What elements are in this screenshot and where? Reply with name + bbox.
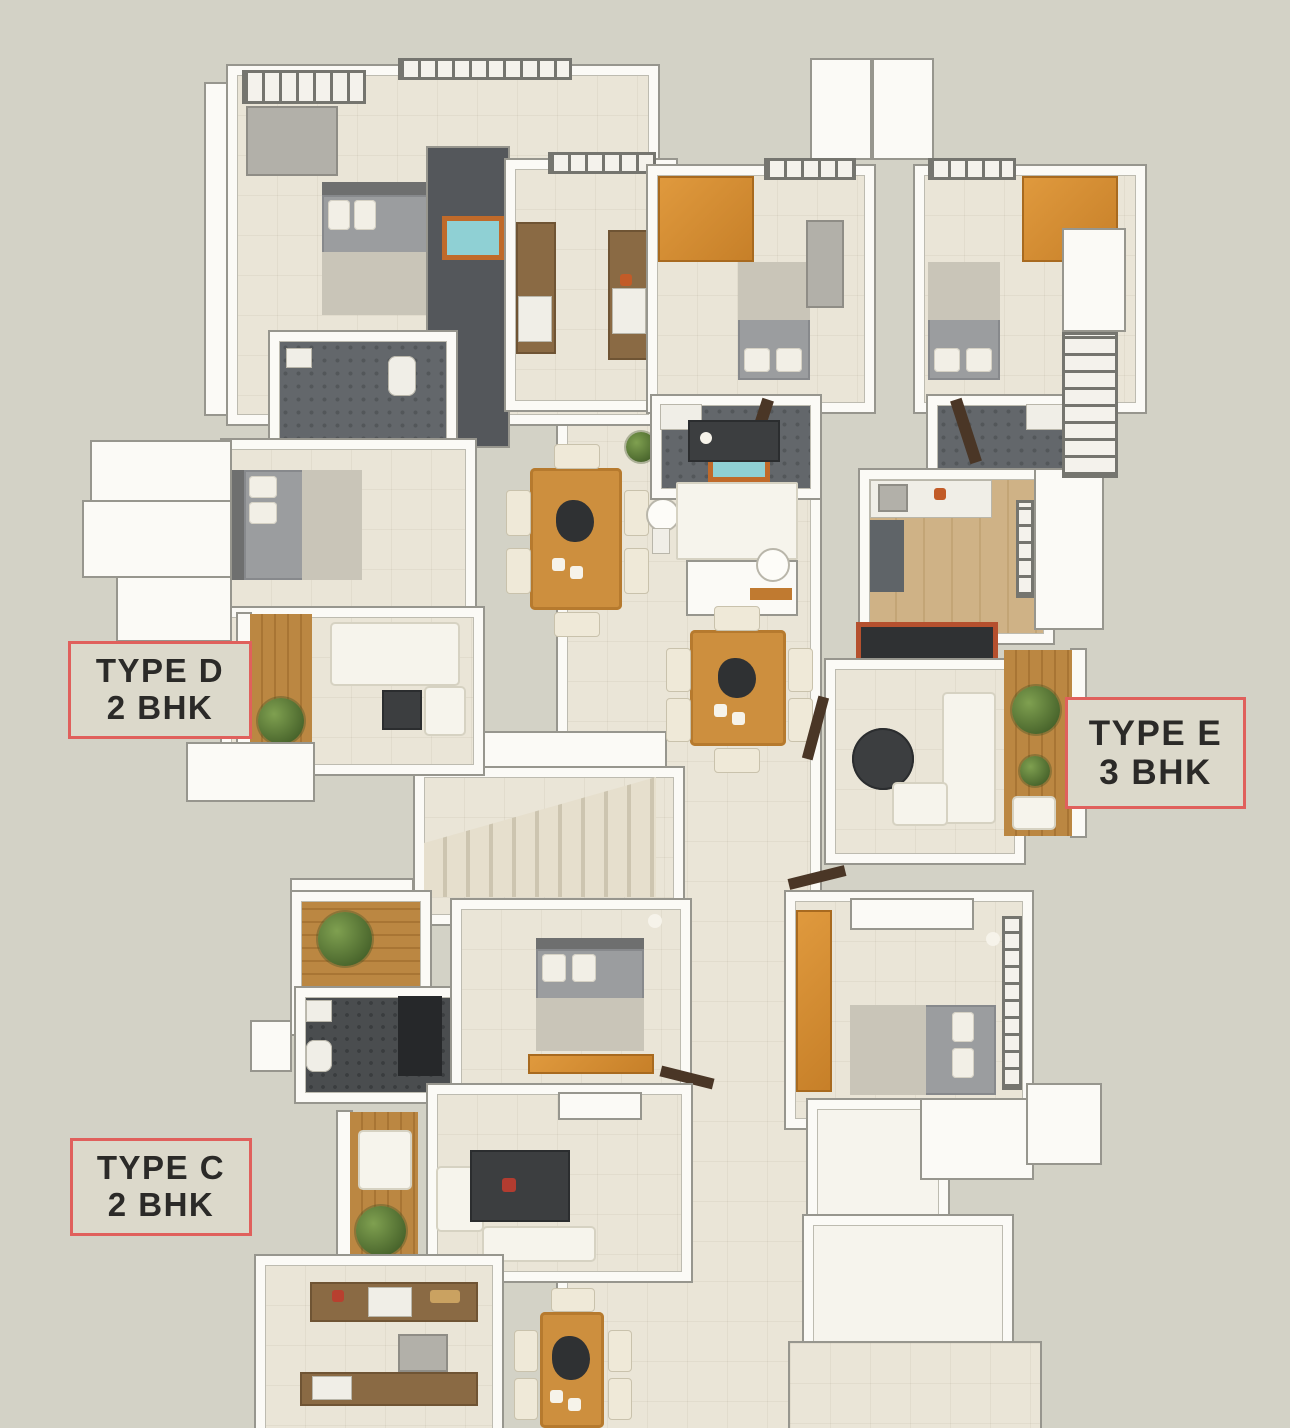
type-e-sofa-chaise xyxy=(892,782,948,826)
type-e-kitchen-counter-dark xyxy=(870,520,904,592)
label-type-c: TYPE C 2 BHK xyxy=(70,1138,252,1236)
type-c-bedroom-lamp xyxy=(648,914,662,928)
type-e-kitchen-window xyxy=(1016,500,1034,598)
type-d-bed2-headboard xyxy=(232,470,244,580)
type-d-mirror xyxy=(442,216,504,260)
type-e-balcony-chair xyxy=(1012,796,1056,830)
type-d-bed-headboard xyxy=(322,182,428,195)
type-e-chair xyxy=(666,648,691,692)
type-c-bed-headboard xyxy=(536,938,644,949)
type-e-bed2-blanket xyxy=(928,262,1000,320)
type-c-lounge-chair xyxy=(358,1130,412,1190)
type-c-balcony2-plant xyxy=(356,1206,406,1256)
type-d-left-balcony-wall xyxy=(118,578,230,640)
type-c-stove xyxy=(368,1287,412,1317)
type-d-tv-console xyxy=(382,690,422,730)
type-e-bed2-pillow xyxy=(966,348,992,372)
type-c-coffee-table-accent xyxy=(502,1178,516,1192)
type-e-bedroom3-lamp xyxy=(986,932,1000,946)
type-c-coffee-table xyxy=(470,1150,570,1222)
type-e-kitchen-sink xyxy=(878,484,908,512)
type-d-chair xyxy=(624,548,649,594)
type-c-table-centerpiece xyxy=(552,1336,590,1380)
type-c-chair xyxy=(608,1330,632,1372)
type-e-bedroom3-wardrobe xyxy=(796,910,832,1092)
type-c-kitchen-utensil xyxy=(332,1290,344,1302)
type-d-left-balcony-wall xyxy=(92,442,230,500)
type-c-chair xyxy=(514,1330,538,1372)
type-d-plate xyxy=(570,566,583,579)
type-e-bottom-wall-stub xyxy=(1028,1085,1100,1163)
type-d-sofa xyxy=(330,622,460,686)
type-e-bedroom3-window xyxy=(1002,916,1022,1090)
type-e-coffee-table xyxy=(852,728,914,790)
type-d-fridge xyxy=(518,296,552,342)
label-type-c-line2: 2 BHK xyxy=(108,1187,215,1224)
type-c-bed-pillow xyxy=(542,954,566,982)
type-d-bed2-pillow xyxy=(249,502,277,524)
type-d-balcony-plant xyxy=(258,698,304,744)
type-d-bed2-blanket xyxy=(302,470,362,580)
type-d-bed2-pillow xyxy=(249,476,277,498)
type-e-bedroom3-shelf xyxy=(852,900,972,928)
type-e-right-window-column xyxy=(1062,332,1118,478)
type-c-cutting-board xyxy=(430,1290,460,1303)
type-e-washbasin-mat xyxy=(750,588,792,600)
staircase-steps xyxy=(424,777,656,897)
type-c-plate xyxy=(550,1390,563,1403)
type-e-chair xyxy=(788,648,813,692)
type-e-bedroom1-wardrobe xyxy=(658,176,754,262)
type-e-duct-shaft xyxy=(874,60,932,158)
type-d-washbasin xyxy=(646,498,680,532)
type-e-sofa-long xyxy=(942,692,996,824)
type-e-chair xyxy=(714,748,760,773)
type-e-kitchen-hob xyxy=(934,488,946,500)
type-e-utility-room xyxy=(1036,470,1102,628)
type-c-chair xyxy=(551,1288,595,1312)
type-e-bed3-blanket xyxy=(850,1005,926,1095)
type-e-foyer-bed xyxy=(676,482,798,560)
type-d-bath-sink xyxy=(286,348,312,368)
label-type-e-line2: 3 BHK xyxy=(1099,753,1212,792)
type-c-bed-blanket xyxy=(536,998,644,1051)
type-d-bed-pillow xyxy=(328,200,350,230)
type-e-balcony-plant xyxy=(1012,686,1060,734)
floor-plan-canvas: TYPE D 2 BHK TYPE E 3 BHK TYPE C 2 BHK xyxy=(0,0,1290,1428)
type-c-console xyxy=(560,1094,640,1118)
type-e-bed3-pillow xyxy=(952,1048,974,1078)
type-d-bed-blanket xyxy=(322,252,428,315)
type-c-balcony1-plant xyxy=(318,912,372,966)
type-d-left-edge-wall xyxy=(206,84,230,414)
type-c-chair xyxy=(514,1378,538,1420)
type-c-chair xyxy=(608,1378,632,1420)
label-type-d-line2: 2 BHK xyxy=(107,690,214,727)
label-type-d-line1: TYPE D xyxy=(96,653,224,690)
type-d-bedroom-window xyxy=(398,58,572,80)
type-c-toilet xyxy=(306,1040,332,1072)
type-c-kitchen-sink xyxy=(312,1376,352,1400)
type-c-plate xyxy=(568,1398,581,1411)
type-d-washbasin-stand xyxy=(652,528,670,554)
type-e-bed3-pillow xyxy=(952,1012,974,1042)
type-d-plate xyxy=(552,558,565,571)
type-e-bed1-pillow xyxy=(776,348,802,372)
type-e-right-wall-stub xyxy=(1064,230,1124,330)
type-d-toilet xyxy=(388,356,416,396)
label-type-c-line1: TYPE C xyxy=(97,1150,225,1187)
type-d-chair xyxy=(506,548,531,594)
type-e-duct-shaft xyxy=(812,60,870,158)
type-d-wardrobe-cabinet xyxy=(246,106,338,176)
type-d-table-centerpiece xyxy=(556,500,594,542)
label-type-e-line1: TYPE E xyxy=(1089,714,1222,753)
type-d-stove-burner xyxy=(620,274,632,286)
type-e-washbasin xyxy=(756,548,790,582)
type-e-sideboard-lamp xyxy=(700,432,712,444)
type-d-chair xyxy=(506,490,531,536)
label-type-d: TYPE D 2 BHK xyxy=(68,641,252,739)
type-e-chair xyxy=(666,698,691,742)
type-d-stove xyxy=(612,288,646,334)
type-e-bath3-side-wall xyxy=(922,1100,1032,1178)
type-c-fridge xyxy=(398,1334,448,1372)
label-type-e: TYPE E 3 BHK xyxy=(1065,697,1246,809)
type-e-chair xyxy=(714,606,760,631)
type-e-balcony-plant xyxy=(1020,756,1050,786)
type-e-plate xyxy=(732,712,745,725)
type-c-bed-pillow xyxy=(572,954,596,982)
type-d-closet-shelf xyxy=(242,70,366,104)
type-e-plate xyxy=(714,704,727,717)
type-d-chair xyxy=(554,612,600,637)
type-d-bed-pillow xyxy=(354,200,376,230)
type-e-bedroom1-shelf xyxy=(806,220,844,308)
type-e-bottom-corridor xyxy=(790,1343,1040,1428)
type-c-outside-sink xyxy=(252,1022,290,1070)
type-d-armchair xyxy=(424,686,466,736)
type-c-bed-bench xyxy=(528,1054,654,1074)
type-d-chair xyxy=(554,444,600,469)
type-d-kitchen-window xyxy=(548,152,656,174)
type-e-table-centerpiece xyxy=(718,658,756,698)
type-c-bath-sink xyxy=(306,1000,332,1022)
type-e-bedroom2-window xyxy=(928,158,1016,180)
type-c-shower-panel xyxy=(398,996,442,1076)
type-e-bedroom1-window xyxy=(764,158,856,180)
type-e-bed1-pillow xyxy=(744,348,770,372)
type-e-bed1-blanket xyxy=(738,262,810,320)
type-e-bed2-pillow xyxy=(934,348,960,372)
type-d-left-balcony-wall xyxy=(84,502,230,576)
type-d-lower-wall-stub xyxy=(188,744,313,800)
type-e-bathroom-4 xyxy=(804,1216,1012,1356)
